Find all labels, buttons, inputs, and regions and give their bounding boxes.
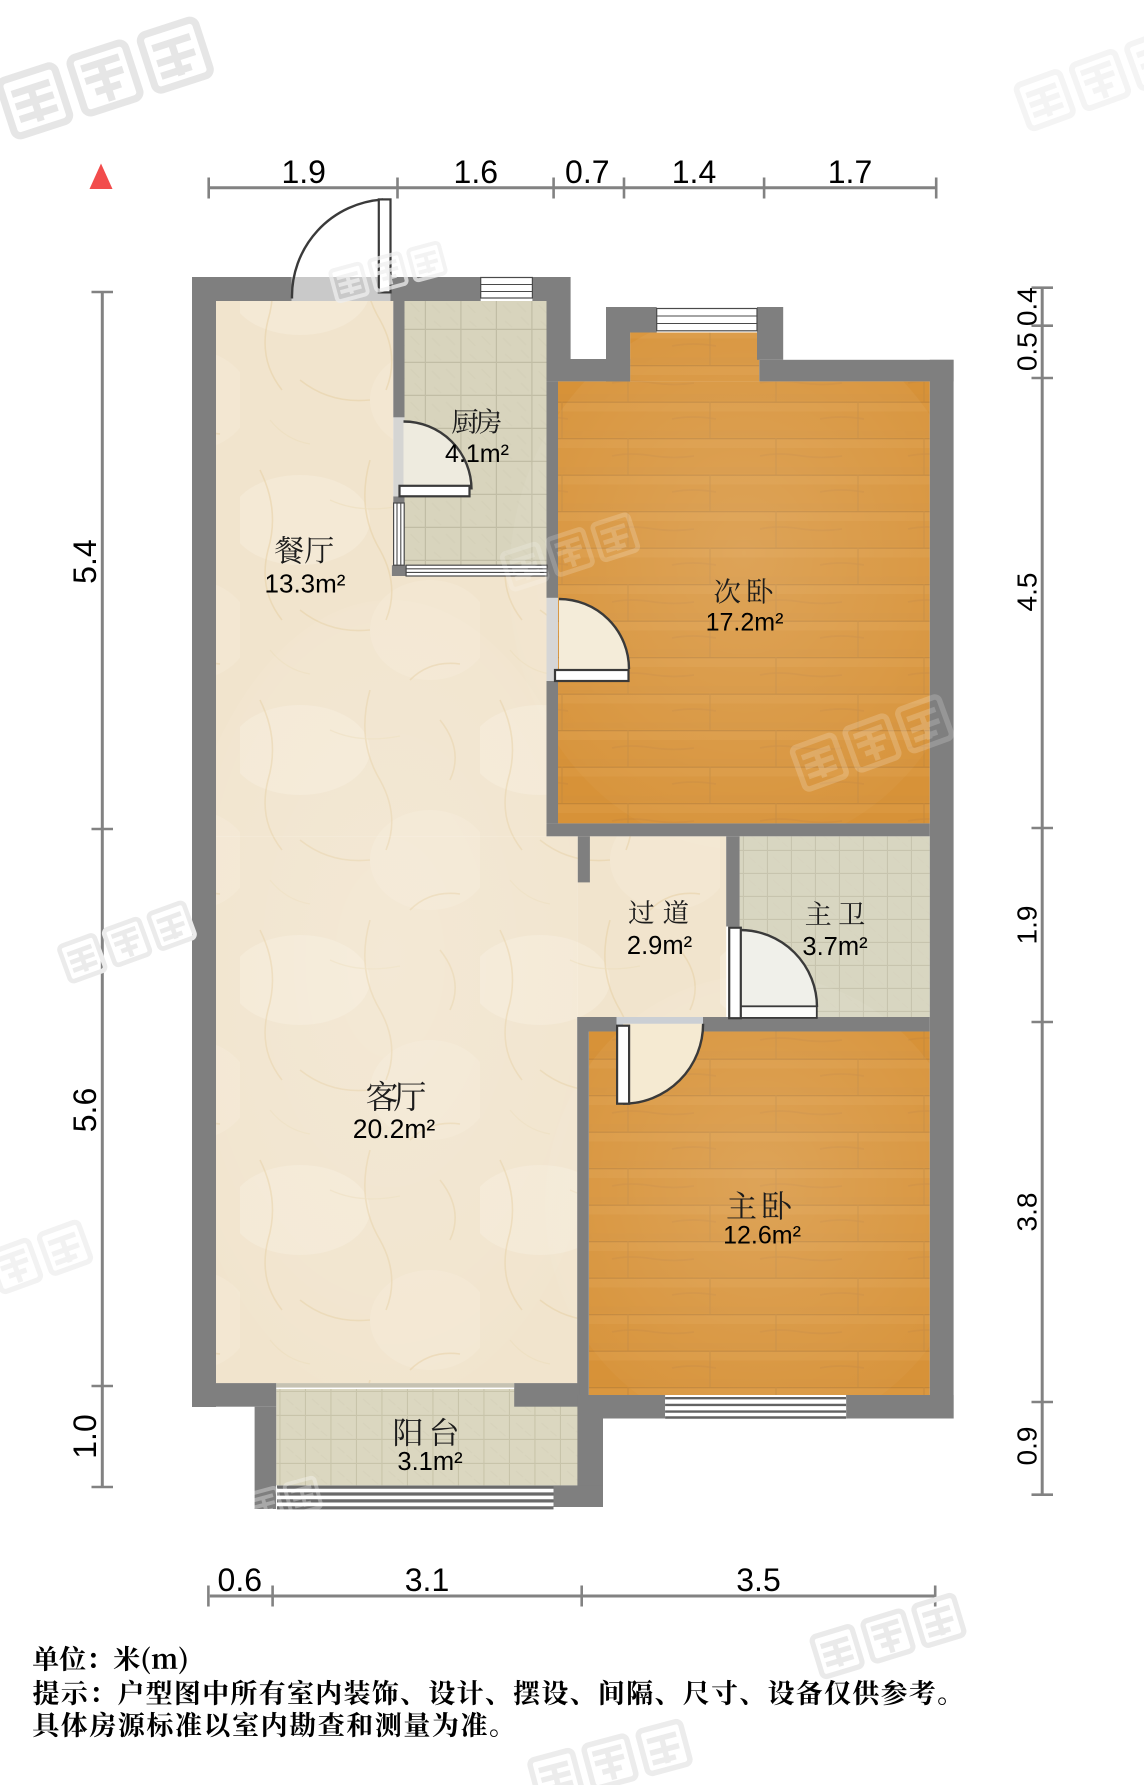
svg-text:1.9: 1.9 xyxy=(281,154,325,190)
svg-text:3.7m²: 3.7m² xyxy=(802,933,867,961)
svg-text:13.3m²: 13.3m² xyxy=(265,568,346,598)
svg-text:0.6: 0.6 xyxy=(218,1562,262,1598)
svg-text:1.7: 1.7 xyxy=(828,154,872,190)
svg-text:4.1m²: 4.1m² xyxy=(445,440,509,468)
svg-text:3.8: 3.8 xyxy=(1012,1193,1043,1232)
svg-text:1.0: 1.0 xyxy=(67,1414,103,1458)
svg-text:2.9m²: 2.9m² xyxy=(627,932,692,960)
svg-text:5.4: 5.4 xyxy=(67,539,103,583)
svg-text:12.6m²: 12.6m² xyxy=(723,1222,801,1250)
svg-text:0.9: 0.9 xyxy=(1012,1427,1043,1466)
svg-text:4.5: 4.5 xyxy=(1012,573,1043,612)
svg-text:3.5: 3.5 xyxy=(736,1562,780,1598)
svg-text:1.9: 1.9 xyxy=(1012,906,1043,945)
svg-text:0.7: 0.7 xyxy=(565,154,609,190)
svg-text:3.1m²: 3.1m² xyxy=(397,1448,462,1476)
svg-text:0.5: 0.5 xyxy=(1012,332,1043,371)
svg-text:1.6: 1.6 xyxy=(454,154,498,190)
svg-text:20.2m²: 20.2m² xyxy=(353,1114,436,1144)
svg-text:3.1: 3.1 xyxy=(405,1562,449,1598)
svg-text:17.2m²: 17.2m² xyxy=(706,609,784,637)
svg-text:5.6: 5.6 xyxy=(67,1088,103,1132)
svg-text:1.4: 1.4 xyxy=(672,154,716,190)
svg-text:0.4: 0.4 xyxy=(1012,287,1043,326)
